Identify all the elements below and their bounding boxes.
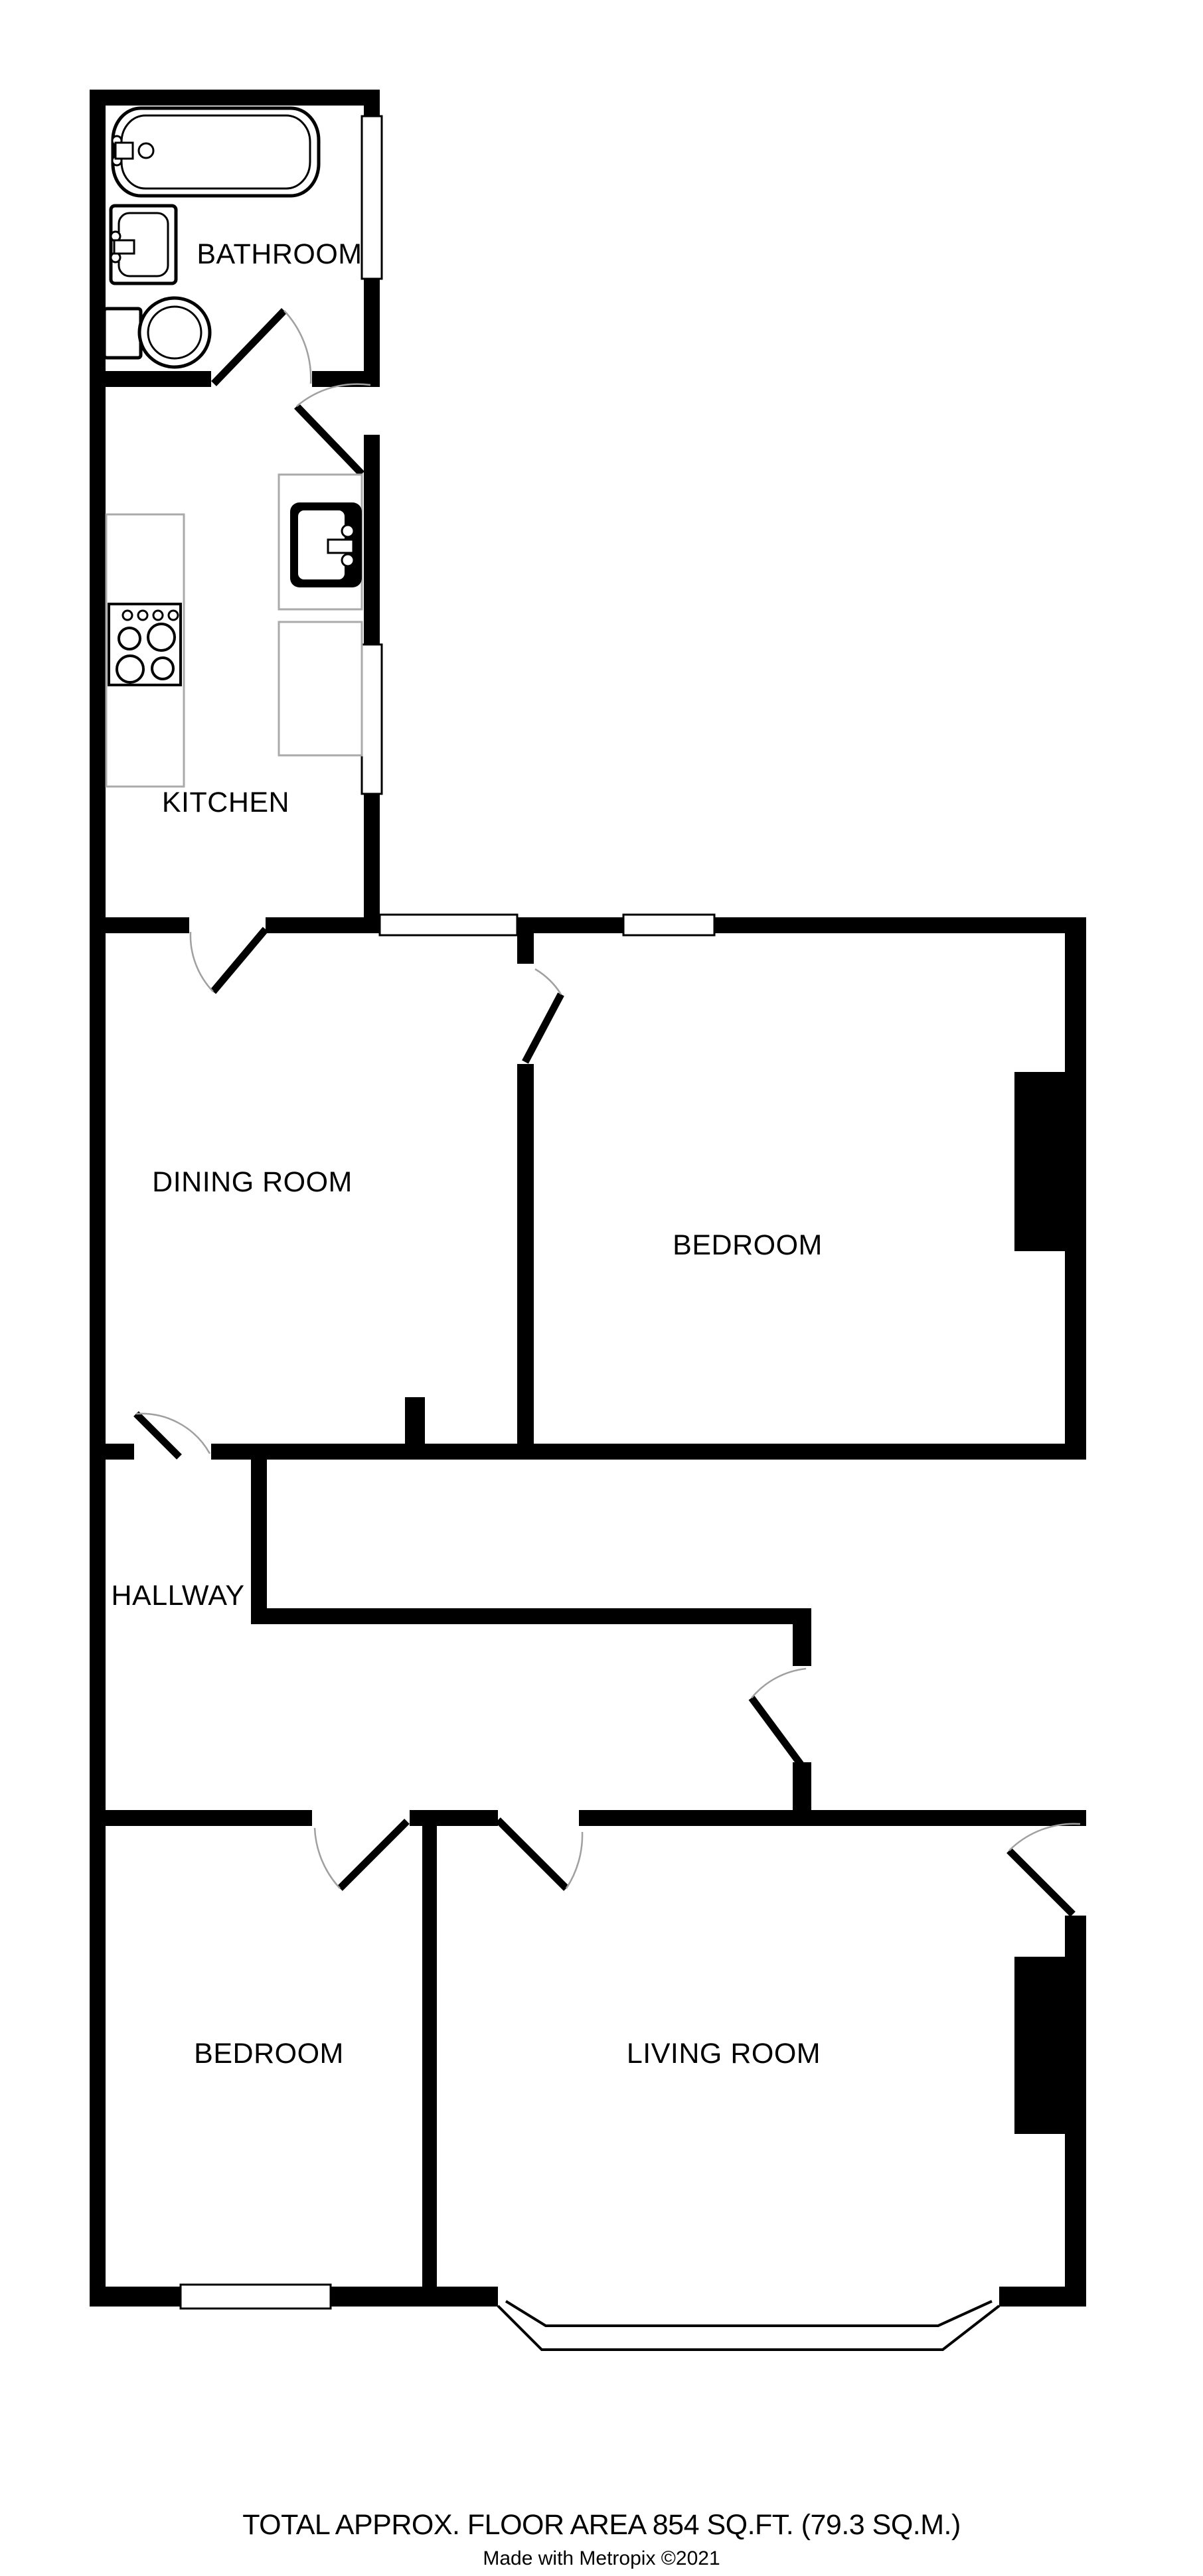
livingroom-second-door-leaf (1009, 1851, 1073, 1914)
bedroom1-top-wall-left (534, 917, 625, 933)
hallway-end-door (752, 1669, 806, 1764)
metropix-credit-text: Made with Metropix ©2021 (483, 2547, 720, 2569)
kitchen-dining-door-leaf (213, 929, 266, 992)
right-outer-wall-lower (1065, 1916, 1086, 2307)
kitchen-right-wall-upper (364, 435, 380, 646)
bedroom1-door-leaf (525, 994, 561, 1062)
hallway-label: HALLWAY (111, 1580, 244, 1612)
room-labels: BATHROOM KITCHEN DINING ROOM BEDROOM HAL… (111, 238, 822, 2070)
hallway-end-door-arc (752, 1669, 806, 1698)
livingroom-bottom-wall-right (999, 2287, 1086, 2307)
bedroom1-chimney-breast (1014, 1072, 1066, 1251)
bathroom-fixtures (104, 108, 319, 367)
bedroom1-window (623, 915, 714, 935)
dining-room-window (380, 915, 517, 935)
left-outer-wall (90, 90, 106, 2307)
walls (90, 90, 1086, 2307)
footer: TOTAL APPROX. FLOOR AREA 854 SQ.FT. (79.… (242, 2509, 961, 2569)
bathroom-right-wall-lower (364, 275, 380, 387)
kitchen-dining-door-arc (191, 932, 213, 992)
right-outer-wall-upper (1065, 917, 1086, 1460)
livingroom-chimney-breast (1014, 1957, 1066, 2134)
bedroom1-top-wall-right (712, 917, 1086, 933)
bathroom-window (362, 116, 382, 279)
bedroom1-door-arc (535, 969, 561, 994)
dining-hallway-door (136, 1414, 210, 1457)
hallway-end-wall-stub (793, 1762, 811, 1826)
bay-window-outer-glazing (498, 2306, 999, 2350)
bedroom2-door-leaf (340, 1821, 407, 1888)
bathroom-right-wall-upper (364, 90, 380, 119)
livingroom-second-door-arc (1009, 1824, 1080, 1851)
kitchen-sink-icon (290, 502, 362, 587)
toilet-icon (104, 298, 210, 367)
entrance-door-leaf (297, 406, 362, 474)
hallway-bottom-wall-seg2 (410, 1810, 498, 1826)
bathtub-icon (112, 108, 319, 196)
bathroom-label: BATHROOM (197, 238, 362, 270)
dining-bedroom-divider (517, 1064, 534, 1460)
dining-bedroom-divider-stub (517, 917, 534, 964)
bedroom2-bottom-wall-left (90, 2287, 183, 2307)
stairwell-wall-horizontal (251, 1608, 811, 1624)
bedroom2-door-arc (315, 1828, 340, 1888)
bay-window (498, 2301, 999, 2350)
dining-room-label: DINING ROOM (152, 1166, 353, 1198)
bathroom-sink-icon (111, 206, 176, 283)
dining-alcove-stub (405, 1397, 425, 1444)
bedroom1-label: BEDROOM (673, 1229, 823, 1261)
hallway-top-wall-left (90, 1444, 134, 1460)
bedroom2-label: BEDROOM (194, 2038, 344, 2070)
livingroom-second-door (1009, 1824, 1080, 1914)
kitchen-dining-door (191, 929, 266, 992)
bedroom2-door (315, 1821, 407, 1888)
top-outer-wall (90, 90, 380, 106)
hallway-bottom-wall-seg3 (579, 1810, 793, 1826)
doors (136, 311, 1080, 1914)
bay-window-inner-glazing (506, 2301, 992, 2326)
hallway-top-wall-right (211, 1444, 1086, 1460)
livingroom-door-arc (566, 1832, 582, 1888)
bedroom2-bottom-wall-right (329, 2287, 498, 2307)
bathroom-door (214, 311, 311, 384)
living-room-label: LIVING ROOM (627, 2038, 821, 2070)
kitchen-right-wall-lower (364, 792, 380, 933)
bathroom-bottom-wall-left (90, 371, 211, 387)
livingroom-door (498, 1820, 582, 1888)
bedroom2-living-divider (422, 1826, 437, 2287)
bedroom2-window (181, 2285, 331, 2309)
hallway-end-wall-upper (793, 1624, 811, 1666)
livingroom-door-leaf (498, 1820, 566, 1888)
kitchen-bottom-wall-right (266, 917, 380, 933)
entrance-door (297, 384, 370, 474)
total-area-text: TOTAL APPROX. FLOOR AREA 854 SQ.FT. (79.… (242, 2509, 961, 2541)
kitchen-window (362, 644, 382, 794)
bathroom-door-arc (284, 311, 311, 384)
hallway-end-door-leaf (752, 1698, 801, 1764)
kitchen-bottom-wall-left (90, 917, 189, 933)
bedroom1-door (525, 969, 561, 1062)
livingroom-top-wall (811, 1810, 1086, 1826)
stairwell-wall-vertical (251, 1460, 267, 1608)
bathroom-door-leaf (214, 311, 284, 384)
kitchen-label: KITCHEN (162, 787, 289, 818)
entrance-door-arc (297, 384, 370, 406)
stove-icon (109, 604, 181, 685)
hallway-bottom-wall-seg1 (90, 1810, 312, 1826)
kitchen-counter-right-lower (279, 622, 362, 755)
windows (181, 116, 714, 2309)
floorplan-canvas: BATHROOM KITCHEN DINING ROOM BEDROOM HAL… (0, 0, 1203, 2576)
kitchen-fixtures (106, 475, 362, 787)
